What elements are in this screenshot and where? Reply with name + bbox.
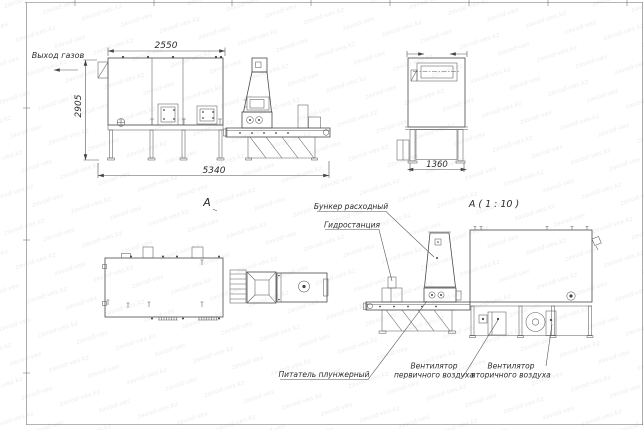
gas-outlet-label: Выход газов <box>32 51 85 60</box>
engineering-drawing: zavod-ves.kz zavod-ves.kz Выход газов <box>0 0 644 430</box>
callout-fan-secondary-line2: вторичного воздуха <box>471 371 551 380</box>
callout-fan-primary-line1: Вентилятор <box>411 362 458 371</box>
dim-2905-text: 2905 <box>74 94 84 117</box>
callout-hopper-text: Бункер расходный <box>314 202 388 211</box>
callout-hydro-text: Гидростанция <box>324 221 381 230</box>
dim-1360-text: 1360 <box>426 160 448 170</box>
plan-view-label: A <box>202 196 211 209</box>
watermark-layer <box>0 0 644 430</box>
callout-fan-primary-line2: первичного воздуха <box>394 371 474 380</box>
detail-view-label: A ( 1 : 10 ) <box>468 199 519 210</box>
dim-5340-text: 5340 <box>203 166 226 176</box>
callout-feeder-text: Питатель плунжерный <box>279 370 370 379</box>
drawing-sheet: zavod-ves.kz zavod-ves.kz Выход газов <box>0 0 644 430</box>
callout-fan-secondary-line1: Вентилятор <box>488 362 535 371</box>
dim-2550-text: 2550 <box>155 41 178 51</box>
